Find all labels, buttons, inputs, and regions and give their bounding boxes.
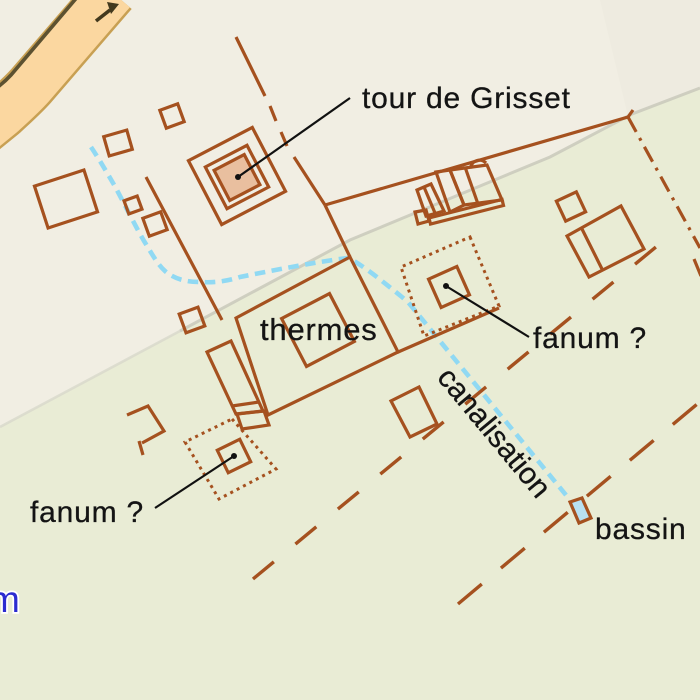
svg-text:fanum ?: fanum ?	[533, 322, 647, 355]
svg-text:m: m	[0, 579, 21, 620]
svg-text:bassin: bassin	[595, 513, 687, 546]
svg-text:thermes: thermes	[260, 312, 378, 347]
svg-text:tour de Grisset: tour de Grisset	[362, 82, 571, 115]
svg-text:fanum ?: fanum ?	[30, 496, 144, 529]
